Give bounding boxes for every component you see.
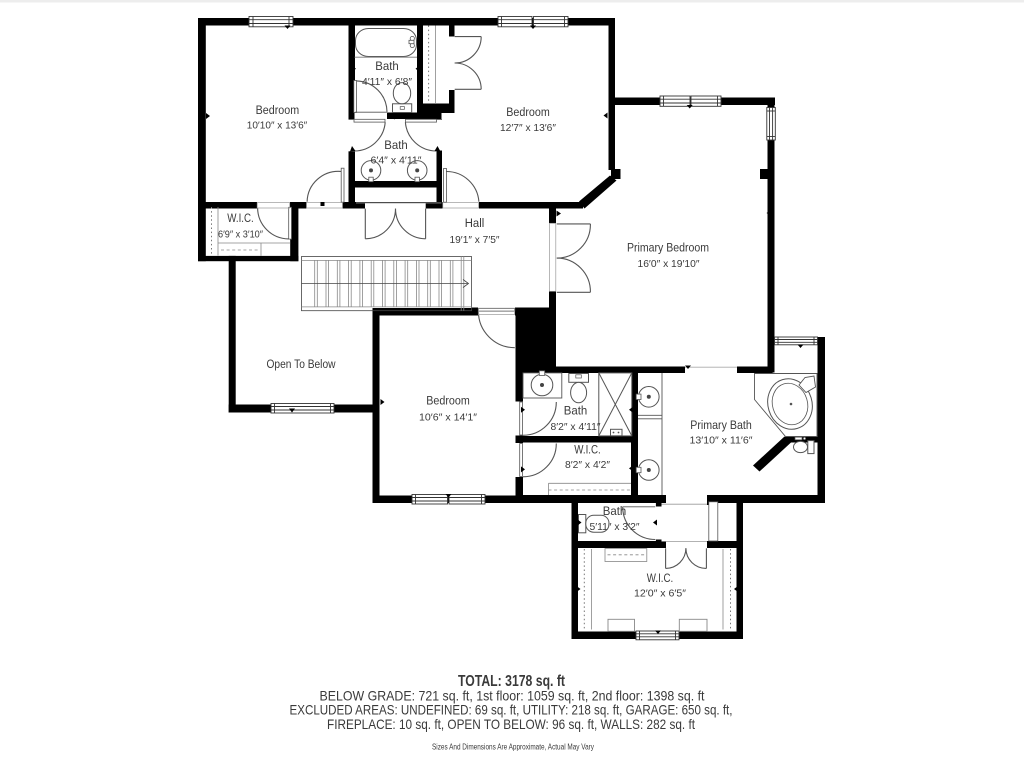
svg-text:8′2″ x 4′2″: 8′2″ x 4′2″ [565,460,610,471]
svg-text:FIREPLACE: 10 sq. ft, OPEN TO: FIREPLACE: 10 sq. ft, OPEN TO BELOW: 96 … [327,717,695,732]
svg-text:Sizes And Dimensions Are Appro: Sizes And Dimensions Are Approximate, Ac… [432,743,594,752]
svg-text:EXCLUDED AREAS: UNDEFINED: 69: EXCLUDED AREAS: UNDEFINED: 69 sq. ft, UT… [290,703,733,718]
svg-text:W.I.C.: W.I.C. [227,211,254,225]
svg-text:Bath: Bath [603,504,627,518]
svg-text:Bath: Bath [375,59,399,73]
svg-text:Bedroom: Bedroom [506,105,550,119]
svg-text:19′1″ x 7′5″: 19′1″ x 7′5″ [450,235,500,246]
svg-text:12′0″ x 6′5″: 12′0″ x 6′5″ [634,589,686,600]
svg-text:Bedroom: Bedroom [256,103,300,117]
svg-text:Open To Below: Open To Below [267,357,336,371]
svg-text:Primary Bath: Primary Bath [690,418,752,432]
svg-text:W.I.C.: W.I.C. [647,571,674,585]
svg-text:Bedroom: Bedroom [426,394,470,408]
svg-text:BELOW GRADE: 721 sq. ft, 1st f: BELOW GRADE: 721 sq. ft, 1st floor: 1059… [320,689,705,704]
svg-text:W.I.C.: W.I.C. [574,443,601,457]
svg-text:Bath: Bath [384,138,408,152]
svg-text:16′0″ x 19′10″: 16′0″ x 19′10″ [638,259,700,270]
svg-text:Bath: Bath [564,404,588,418]
svg-text:12′7″ x 13′6″: 12′7″ x 13′6″ [500,123,556,134]
svg-text:10′6″ x 14′1″: 10′6″ x 14′1″ [419,413,477,424]
svg-text:TOTAL: 3178 sq. ft: TOTAL: 3178 sq. ft [458,673,565,690]
svg-text:13′10″ x 11′6″: 13′10″ x 11′6″ [690,436,753,447]
svg-text:Hall: Hall [465,216,485,230]
svg-text:Primary Bedroom: Primary Bedroom [627,241,709,255]
svg-text:10′10″ x 13′6″: 10′10″ x 13′6″ [247,121,308,132]
svg-text:8′2″ x 4′11″: 8′2″ x 4′11″ [551,422,601,433]
svg-text:4′11″ x 6′8″: 4′11″ x 6′8″ [362,77,412,88]
svg-text:6′9″ x 3′10″: 6′9″ x 3′10″ [218,230,263,241]
svg-text:6′4″ x 4′11″: 6′4″ x 4′11″ [371,156,422,167]
svg-text:5′11″ x 3′2″: 5′11″ x 3′2″ [590,522,640,533]
